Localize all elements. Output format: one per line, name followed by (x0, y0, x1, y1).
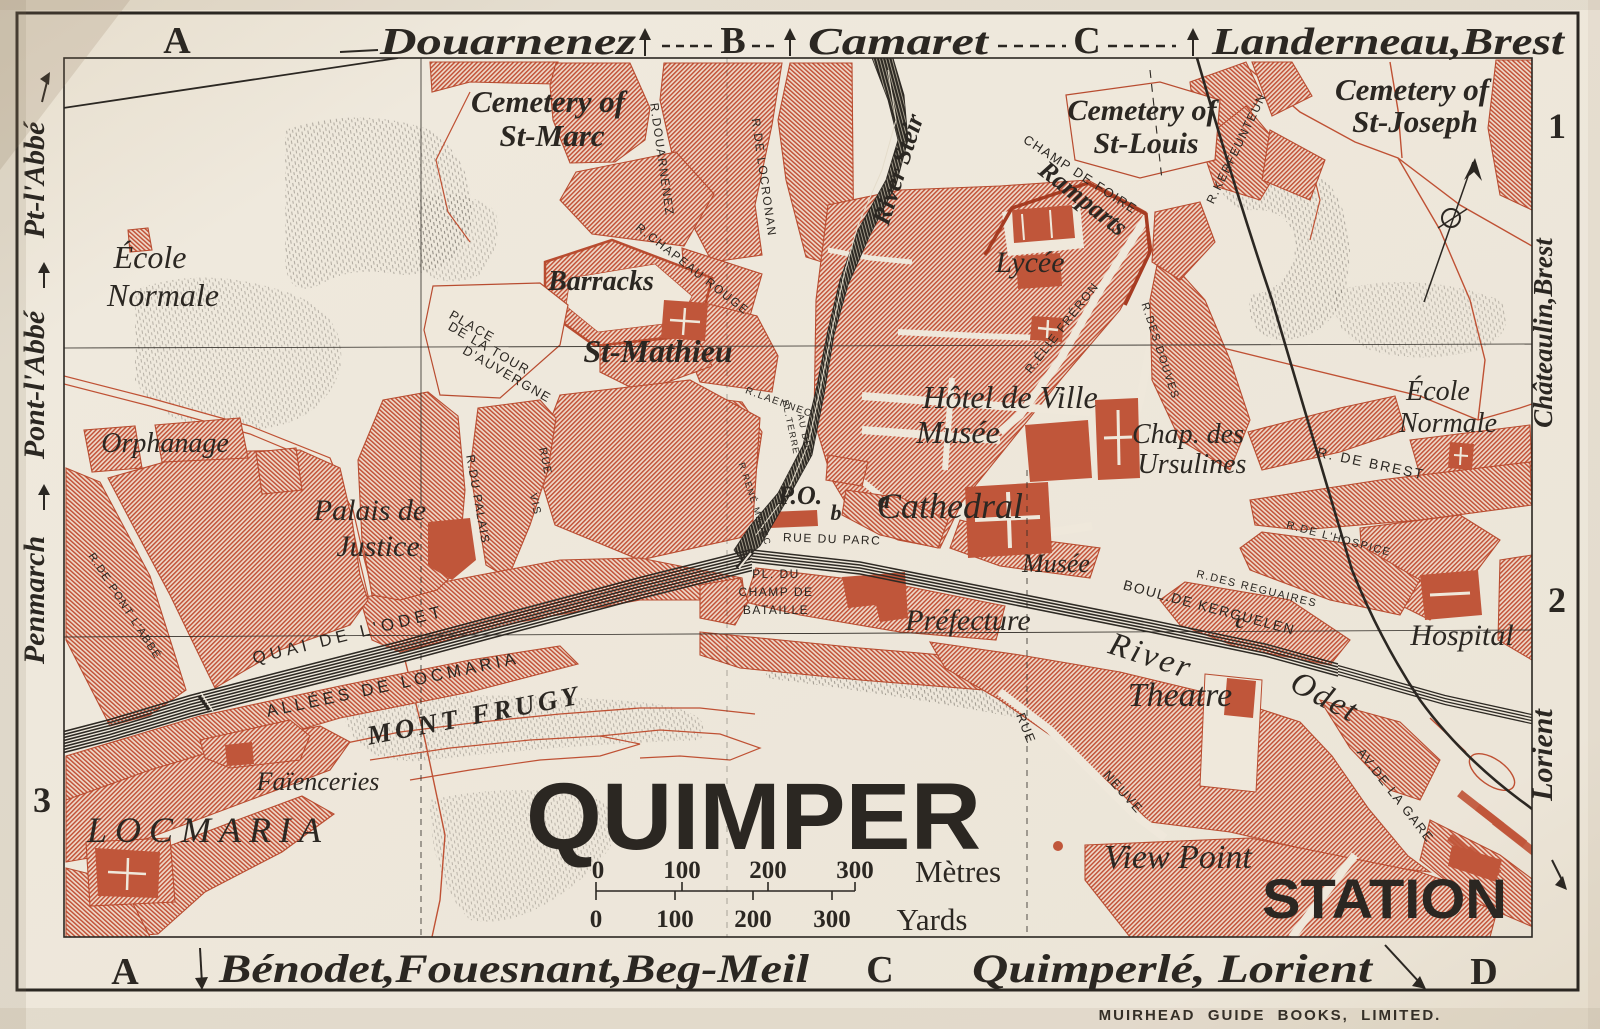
svg-text:View Point: View Point (1104, 839, 1253, 876)
svg-text:a: a (878, 488, 890, 514)
svg-text:300: 300 (813, 906, 851, 933)
svg-text:Camaret: Camaret (808, 21, 990, 63)
svg-text:Yards: Yards (897, 902, 968, 937)
svg-text:2: 2 (1548, 580, 1566, 620)
svg-text:Justice: Justice (336, 530, 419, 563)
svg-text:200: 200 (749, 857, 787, 884)
svg-text:QUIMPER: QUIMPER (526, 764, 981, 870)
svg-text:Normale: Normale (106, 277, 219, 313)
svg-text:C: C (866, 949, 893, 991)
svg-text:Barracks: Barracks (547, 266, 654, 297)
svg-text:Mètres: Mètres (915, 854, 1001, 889)
svg-text:100: 100 (656, 906, 694, 933)
svg-text:Préfecture: Préfecture (904, 604, 1031, 637)
svg-text:Cemetery of: Cemetery of (1067, 94, 1219, 127)
svg-text:Quimperlé, Lorient: Quimperlé, Lorient (972, 946, 1374, 991)
svg-text:0: 0 (590, 906, 603, 933)
svg-text:Ursulines: Ursulines (1138, 449, 1247, 480)
svg-text:Palais de: Palais de (313, 494, 427, 527)
svg-text:Landerneau,Brest: Landerneau,Brest (1211, 21, 1566, 63)
svg-text:Cathedral: Cathedral (877, 486, 1023, 526)
svg-text:Bénodet,Fouesnant,Beg-Meil: Bénodet,Fouesnant,Beg-Meil (218, 946, 810, 991)
svg-text:STATION: STATION (1262, 867, 1507, 930)
svg-text:A: A (111, 951, 139, 993)
svg-text:Hospital: Hospital (1409, 619, 1513, 652)
svg-text:Douarnenez: Douarnenez (379, 21, 637, 63)
svg-text:Châteaulin,Brest: Châteaulin,Brest (1528, 237, 1558, 428)
svg-text:300: 300 (836, 857, 874, 884)
svg-text:Chap. des: Chap. des (1132, 419, 1244, 450)
svg-text:BATAILLE: BATAILLE (743, 603, 809, 617)
svg-text:Hôtel de Ville: Hôtel de Ville (921, 379, 1097, 415)
svg-text:PL. DU: PL. DU (752, 567, 800, 581)
svg-text:C: C (1073, 20, 1100, 62)
svg-text:CHAMP DE: CHAMP DE (738, 585, 813, 599)
svg-text:A: A (163, 20, 191, 62)
svg-text:St-Mathieu: St-Mathieu (583, 333, 732, 369)
svg-text:b: b (831, 500, 842, 525)
svg-text:Cemetery of: Cemetery of (471, 84, 628, 119)
svg-text:D: D (1470, 951, 1497, 993)
svg-text:P.O.: P.O. (777, 481, 822, 510)
svg-text:1: 1 (1548, 106, 1566, 146)
svg-text:École: École (1405, 376, 1470, 407)
svg-text:B: B (720, 20, 745, 62)
svg-text:St-Marc: St-Marc (499, 118, 604, 153)
svg-text:Musée: Musée (1021, 549, 1090, 578)
svg-text:St-Louis: St-Louis (1093, 127, 1198, 160)
svg-text:Faïenceries: Faïenceries (256, 767, 380, 796)
svg-text:St-Joseph: St-Joseph (1352, 104, 1478, 139)
svg-text:200: 200 (734, 906, 772, 933)
svg-text:Lorient: Lorient (1526, 708, 1559, 802)
svg-text:Orphanage: Orphanage (101, 428, 229, 459)
svg-text:Cemetery of: Cemetery of (1335, 72, 1492, 107)
svg-text:Normale: Normale (1398, 408, 1497, 439)
svg-text:0: 0 (592, 857, 605, 884)
svg-text:LOCMARIA: LOCMARIA (86, 810, 329, 850)
svg-text:Musée: Musée (915, 414, 1000, 450)
svg-text:3: 3 (33, 780, 51, 820)
svg-text:Lycée: Lycée (994, 246, 1064, 279)
svg-text:École: École (113, 239, 187, 275)
svg-text:100: 100 (663, 857, 701, 884)
